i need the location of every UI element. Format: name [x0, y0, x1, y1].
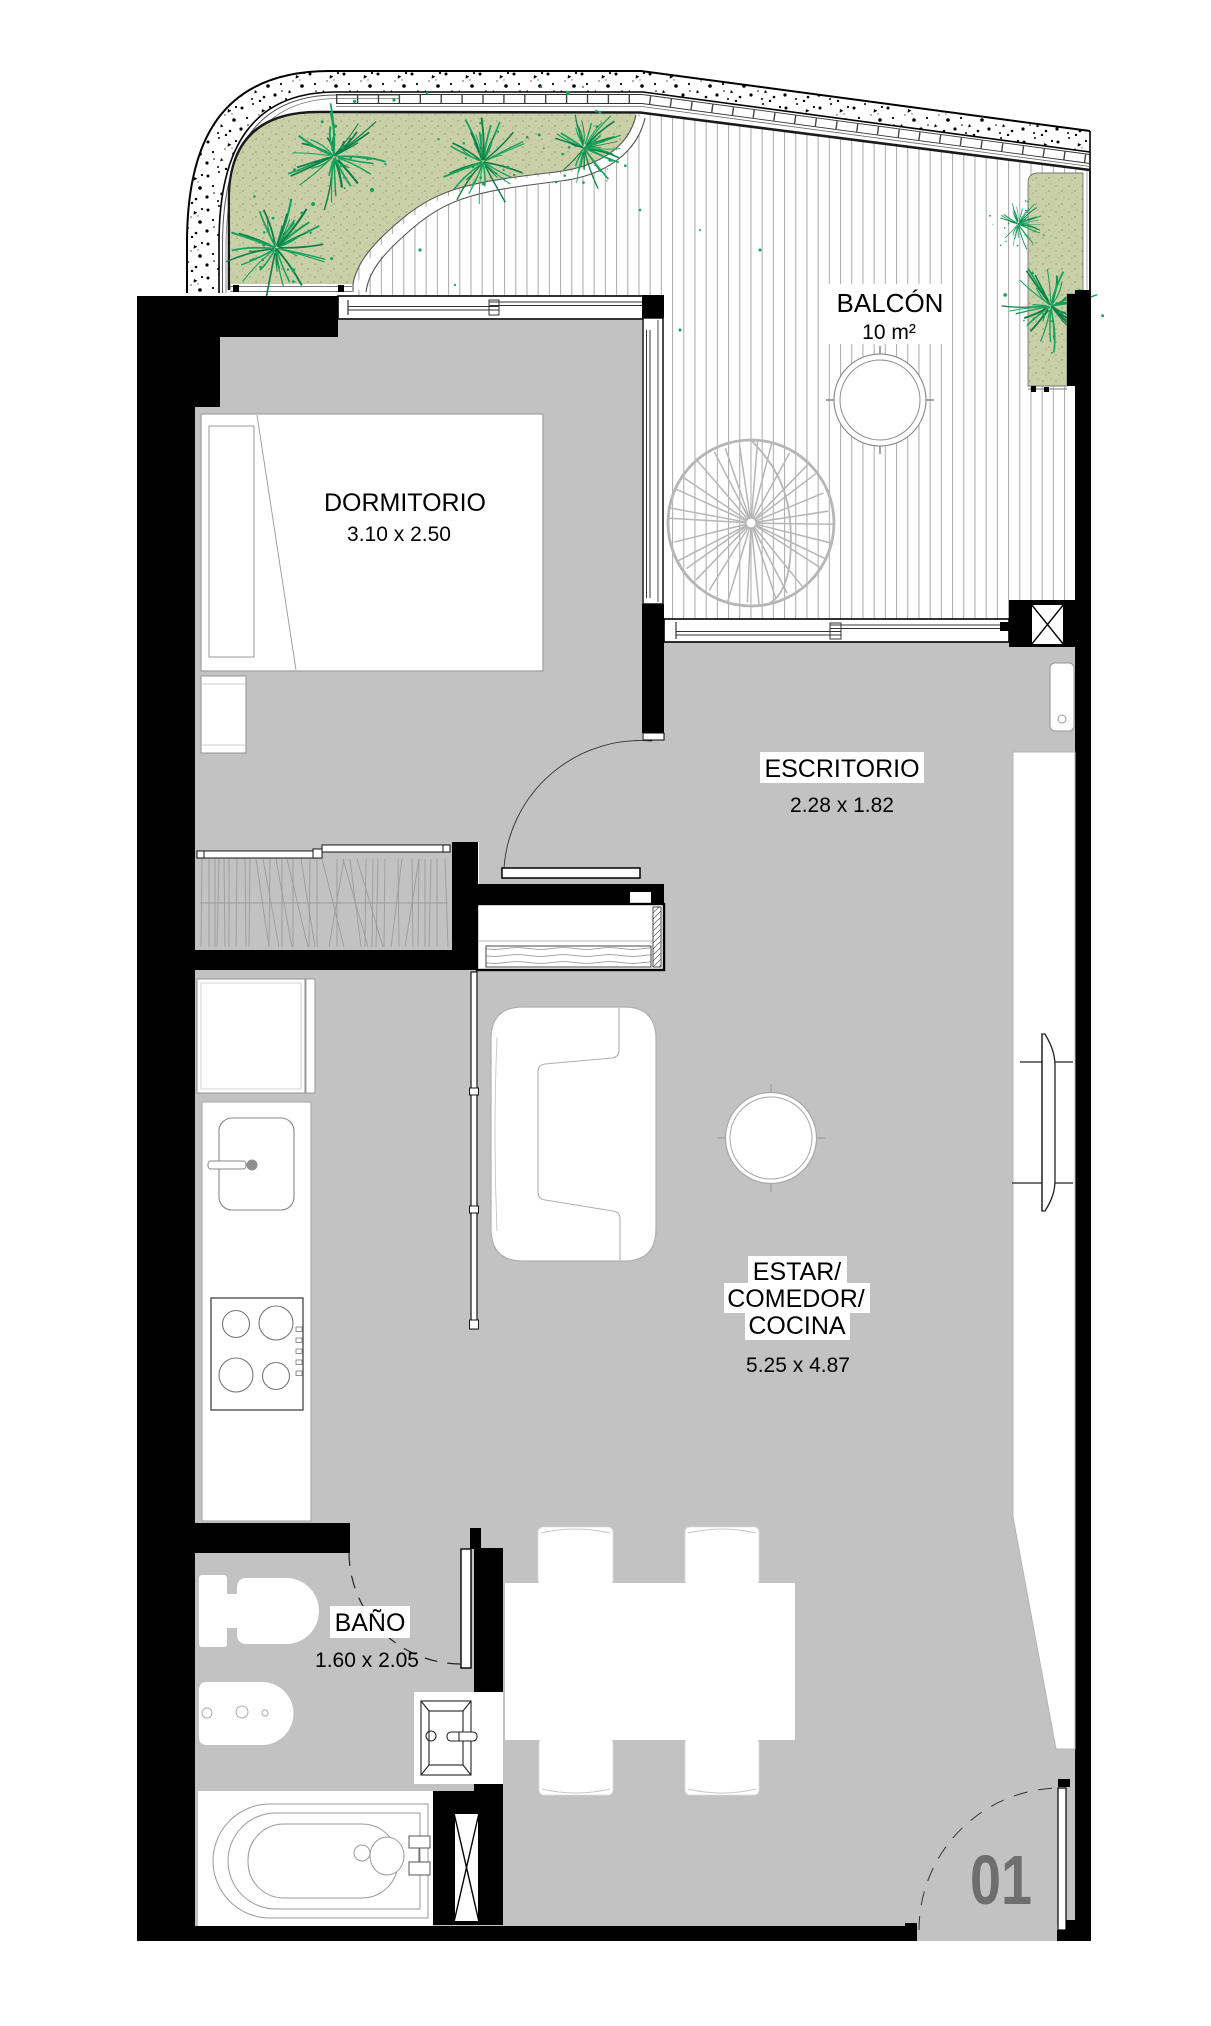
svg-text:2.28 x 1.82: 2.28 x 1.82: [790, 794, 894, 817]
svg-text:ESTAR/: ESTAR/: [753, 1258, 841, 1286]
svg-text:BALCÓN: BALCÓN: [837, 288, 944, 318]
svg-text:COMEDOR/: COMEDOR/: [727, 1285, 865, 1313]
svg-text:01: 01: [970, 1841, 1032, 1919]
svg-text:1.60 x 2.05: 1.60 x 2.05: [315, 1649, 419, 1672]
svg-text:COCINA: COCINA: [748, 1312, 846, 1340]
svg-text:DORMITORIO: DORMITORIO: [324, 489, 486, 517]
svg-text:3.10 x 2.50: 3.10 x 2.50: [347, 523, 451, 546]
svg-text:ESCRITORIO: ESCRITORIO: [764, 755, 919, 783]
svg-text:BAÑO: BAÑO: [335, 1608, 406, 1637]
svg-text:5.25 x 4.87: 5.25 x 4.87: [746, 1354, 850, 1377]
svg-text:10 m²: 10 m²: [862, 321, 916, 344]
